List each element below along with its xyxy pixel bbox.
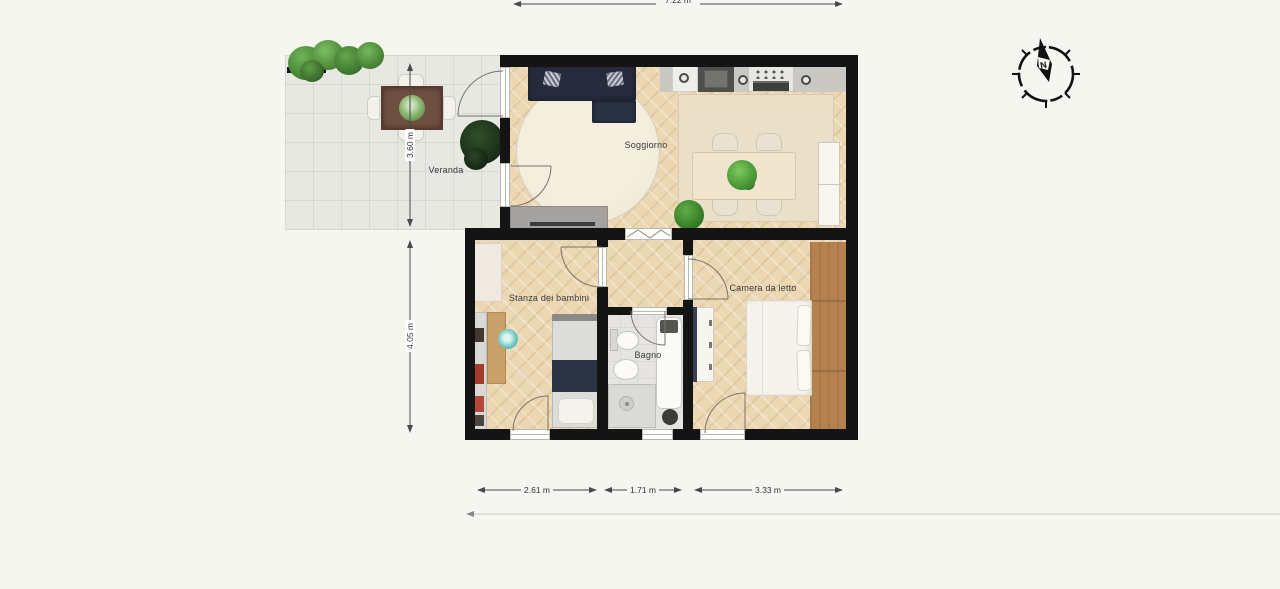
door-swing-veranda-window [511,166,551,206]
sliding-door-zigzag [627,230,670,238]
dim-line-bottom-full [466,511,1280,517]
door-swing-kidsroom [561,247,601,287]
room-label-camera: Camera da letto [729,283,796,293]
dim-label-bottom-right: 3.33 m [752,485,784,495]
compass-icon: N [1012,38,1080,108]
door-swing-bedroom-exit [705,393,745,433]
overlay: N [0,0,1280,589]
dim-label-left-lower: 4.05 m [405,320,415,352]
room-label-stanza: Stanza dei bambini [509,293,589,303]
door-swing-bathroom [631,311,665,345]
dim-label-bottom-left: 2.61 m [521,485,553,495]
dim-label-bottom-mid: 1.71 m [627,485,659,495]
door-swing-veranda [458,71,503,116]
dim-label-left-upper: 3.60 m [405,129,415,161]
door-swing-bedroom [688,259,728,299]
floor-plan: N Veranda Soggiorno Stanza dei bambini B… [0,0,1280,589]
room-label-soggiorno: Soggiorno [625,140,668,150]
room-label-bagno: Bagno [634,350,661,360]
room-label-veranda: Veranda [429,165,464,175]
door-swing-kids-window [513,396,548,431]
dim-label-top: 7.22 m [662,0,694,5]
